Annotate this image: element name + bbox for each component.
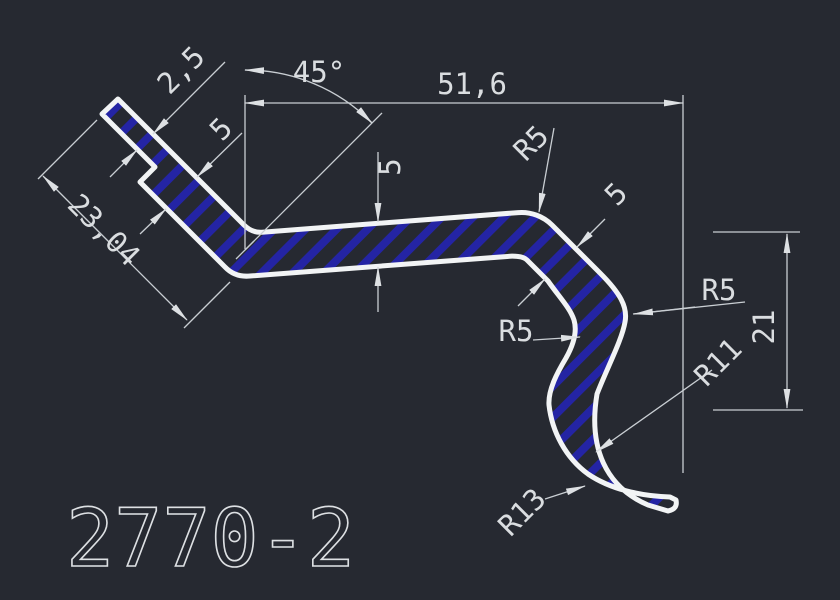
hook-height-label: 21 bbox=[747, 310, 781, 345]
overall-width-label: 51,6 bbox=[437, 67, 507, 101]
bend-angle-label: 45° bbox=[293, 55, 345, 89]
radius-left-label: R5 bbox=[499, 314, 534, 348]
cad-canvas: 51,6 45° 2,5 5 23,04 5 5 bbox=[0, 0, 840, 600]
thickness-mid-label: 5 bbox=[373, 158, 407, 175]
drawing-number: 2770-2 bbox=[66, 492, 355, 585]
technical-drawing: 51,6 45° 2,5 5 23,04 5 5 bbox=[0, 0, 840, 600]
radius-right-label: R5 bbox=[702, 273, 737, 307]
